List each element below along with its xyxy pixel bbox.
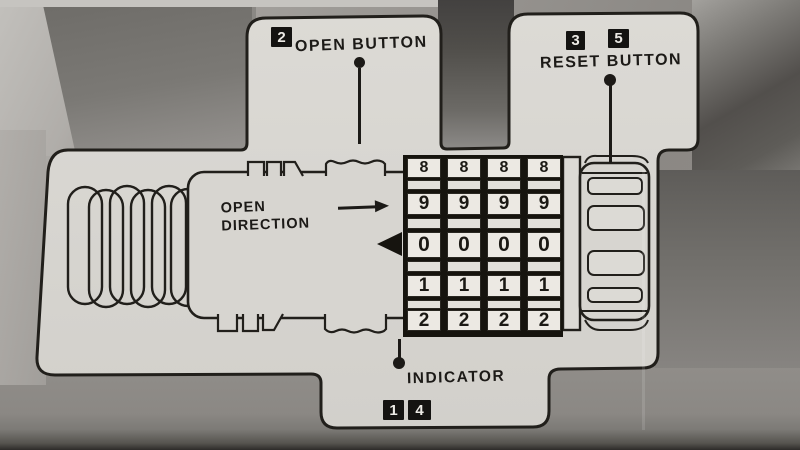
dial-digit: 2: [407, 310, 441, 331]
dial-wheel-spacer: [487, 261, 521, 272]
dial-digit: 9: [487, 193, 521, 215]
leader-line-reset-button: [609, 85, 612, 163]
step-ref-badge: 1: [383, 400, 404, 420]
dial-digit: 8: [487, 158, 521, 178]
dial-wheel-spacer: [447, 300, 481, 309]
dial-digit: 8: [447, 158, 481, 178]
open-direction-arrowhead-icon: [375, 200, 389, 212]
dial-wheel-spacer: [447, 180, 481, 190]
step-ref-badge: 3: [566, 31, 585, 50]
dial-digit: 2: [487, 310, 521, 331]
dial-wheel-spacer: [527, 261, 561, 272]
step-ref-badge: 4: [408, 400, 431, 420]
dial-wheel-spacer: [487, 180, 521, 190]
indicator-label: INDICATOR: [407, 368, 506, 389]
dial-wheel-spacer: [407, 218, 441, 229]
dial-digit: 2: [527, 310, 561, 331]
leader-dot: [393, 357, 405, 369]
open-direction-line2: DIRECTION: [221, 215, 310, 234]
open-direction-label: OPEN DIRECTION: [220, 196, 310, 235]
dial-wheel-spacer: [487, 300, 521, 309]
open-direction-line1: OPEN: [220, 199, 266, 217]
dial-digit: 2: [447, 310, 481, 331]
dial-wheel-spacer: [407, 300, 441, 309]
dial-digit: 1: [447, 275, 481, 297]
leader-line-open-button: [358, 68, 361, 144]
instruction-photo: 8 8 8 8 9 9 9 9 0 0 0 0 1 1 1 1 2 2 2: [0, 0, 800, 450]
leader-dot: [354, 57, 365, 68]
paper-crease: [642, 170, 645, 430]
reset-button-label: RESET BUTTON: [540, 51, 683, 73]
dial-wheel-spacer: [487, 218, 521, 229]
dial-wheel-spacer: [447, 261, 481, 272]
reset-knob: [580, 156, 649, 330]
dial-wheel-spacer: [447, 218, 481, 229]
dial-frame-strip: [563, 157, 580, 330]
dial-wheel-spacer: [527, 300, 561, 309]
dial-digit-indicated: 0: [447, 232, 481, 258]
dial-digit: 1: [527, 275, 561, 297]
dial-digit: 9: [447, 193, 481, 215]
step-ref-badge: 2: [271, 27, 292, 47]
dial-digit-indicated: 0: [527, 232, 561, 258]
dial-digit: 1: [487, 275, 521, 297]
dial-digit: 9: [407, 193, 441, 215]
dial-digit: 9: [527, 193, 561, 215]
dial-wheel-spacer: [407, 180, 441, 190]
dial-digit: 8: [527, 158, 561, 178]
step-ref-badge: 5: [608, 29, 629, 48]
dial-wheel-spacer: [527, 218, 561, 229]
dial-assembly: 8 8 8 8 9 9 9 9 0 0 0 0 1 1 1 1 2 2 2: [403, 155, 563, 337]
indicator-triangle-icon: [377, 232, 402, 256]
dial-digit: 8: [407, 158, 441, 178]
dial-wheel-spacer: [527, 180, 561, 190]
dial-wheel-spacer: [407, 261, 441, 272]
dial-digit-indicated: 0: [487, 232, 521, 258]
dial-digit: 1: [407, 275, 441, 297]
dial-digit-indicated: 0: [407, 232, 441, 258]
